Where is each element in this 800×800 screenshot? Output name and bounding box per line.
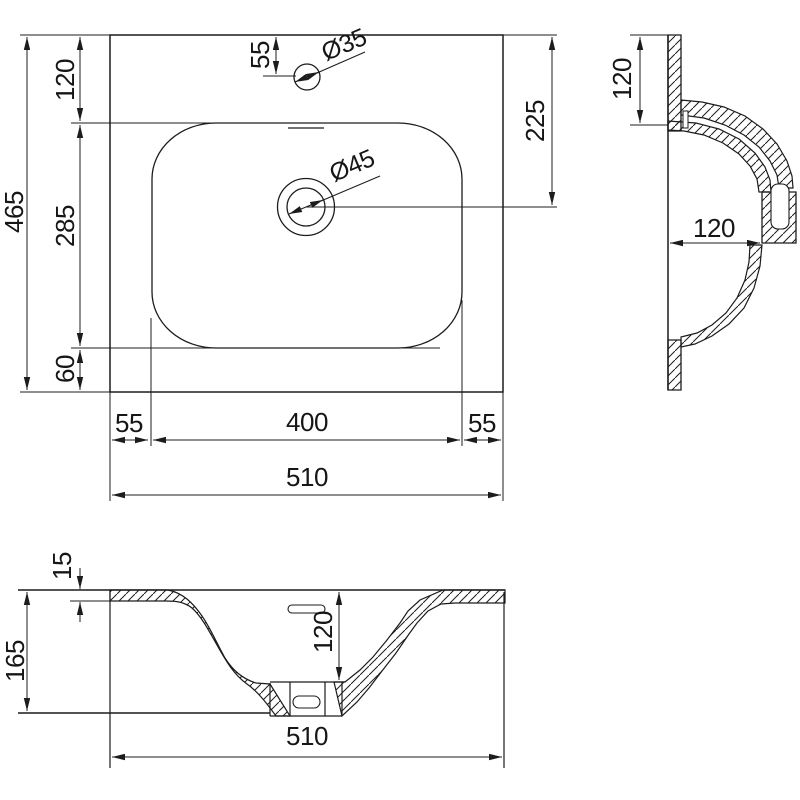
technical-drawing: 465 120 285 60 55 225 Ø35 Ø45 55 400 55 … <box>0 0 800 800</box>
dim-front-rim-thickness: 15 <box>47 552 77 580</box>
front-right-bowl-band <box>334 590 505 716</box>
side-drain-channel <box>771 184 789 229</box>
front-dimension-labels: 15 165 120 510 <box>0 552 338 751</box>
dim-plan-total-height: 465 <box>0 191 29 233</box>
dim-front-total-width: 510 <box>286 721 328 751</box>
dim-plan-total-width: 510 <box>286 462 328 492</box>
drawing-svg: 465 120 285 60 55 225 Ø35 Ø45 55 400 55 … <box>0 0 800 800</box>
dim-side-upper-height: 120 <box>607 58 637 100</box>
dim-plan-drain-offset: 225 <box>520 100 550 142</box>
plan-dimension-labels: 465 120 285 60 55 225 Ø35 Ø45 55 400 55 … <box>0 23 550 492</box>
front-drain-slot <box>293 696 320 708</box>
dim-plan-faucet-offset: 55 <box>245 41 275 69</box>
dim-plan-seg-bot: 60 <box>50 355 80 383</box>
front-left-bowl-band <box>110 590 290 716</box>
plan-view: 465 120 285 60 55 225 Ø35 Ø45 55 400 55 … <box>0 23 557 501</box>
side-top-flange <box>668 35 681 131</box>
dim-plan-basin-width: 400 <box>286 407 328 437</box>
plan-countertop-outline <box>110 35 503 392</box>
dim-plan-margin-right: 55 <box>468 408 496 438</box>
dim-front-bowl-depth: 120 <box>308 611 338 653</box>
dim-plan-margin-left: 55 <box>115 408 143 438</box>
side-overflow-notch <box>683 111 688 128</box>
dim-plan-seg-mid: 285 <box>50 205 80 247</box>
side-lower-wall <box>681 245 762 347</box>
front-section-view: 15 165 120 510 <box>0 552 505 768</box>
dim-plan-faucet-dia: Ø35 <box>317 23 370 67</box>
dim-plan-drain-dia: Ø45 <box>325 144 378 188</box>
dim-side-inner-depth: 120 <box>693 213 735 243</box>
dim-front-total-height: 165 <box>0 640 30 682</box>
side-bottom-flange <box>668 340 681 390</box>
dim-plan-seg-top: 120 <box>50 59 80 101</box>
side-section-view: 120 120 <box>607 35 796 390</box>
